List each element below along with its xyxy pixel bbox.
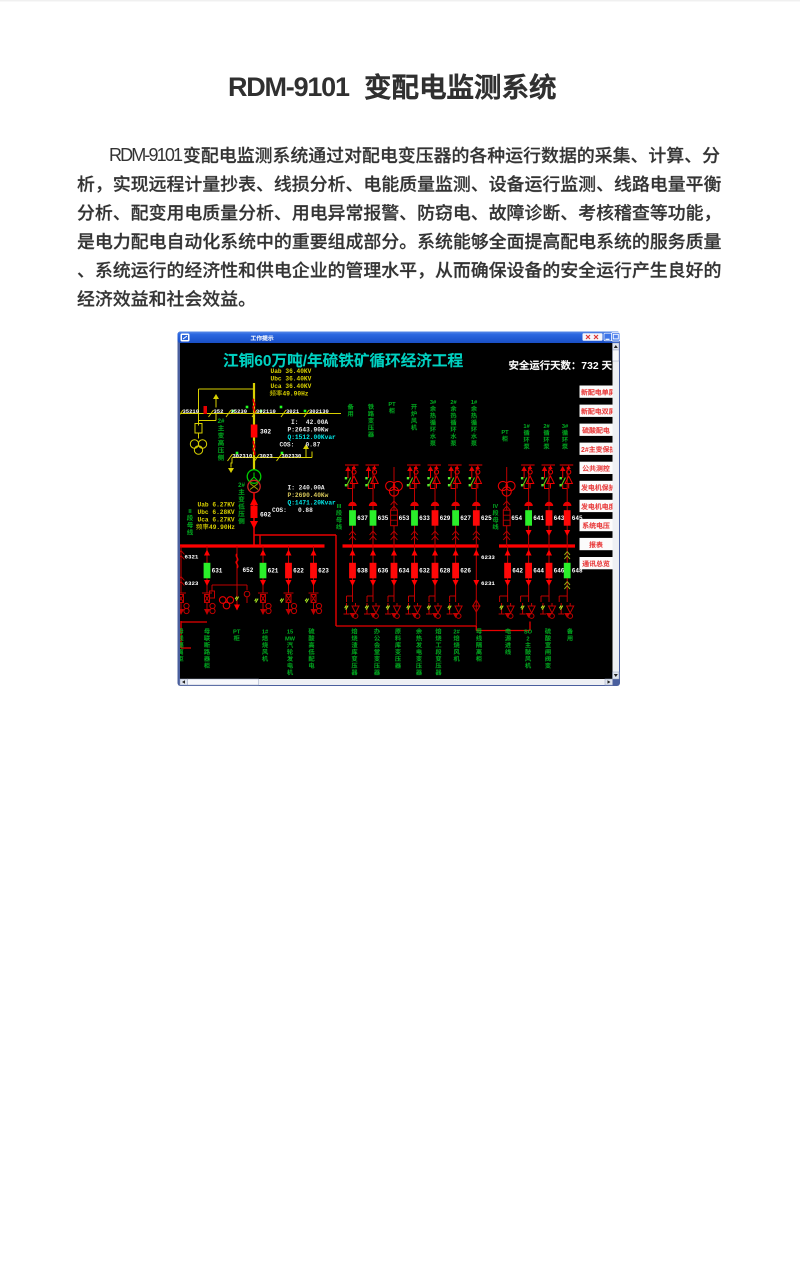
svg-text:602: 602: [260, 512, 271, 519]
svg-text:I: 42.00A: I: 42.00A: [291, 419, 328, 426]
svg-text:Uca 36.40KV: Uca 36.40KV: [271, 383, 312, 390]
svg-text:COS: 0.87: COS: 0.87: [280, 442, 321, 449]
svg-text:35230: 35230: [231, 408, 248, 415]
svg-text:2#: 2#: [450, 400, 457, 406]
svg-text:2#: 2#: [543, 424, 550, 430]
svg-text:622: 622: [293, 568, 304, 575]
svg-text:III: III: [337, 504, 342, 510]
svg-text:652: 652: [243, 567, 254, 574]
svg-text:Ubc 6.28KV: Ubc 6.28KV: [198, 509, 235, 516]
svg-text:COS: 0.88: COS: 0.88: [272, 507, 313, 514]
svg-text:P:2690.40Kw: P:2690.40Kw: [288, 492, 329, 499]
svg-text:648: 648: [572, 568, 583, 575]
svg-text:1#: 1#: [523, 424, 530, 430]
svg-text:6323: 6323: [185, 580, 199, 587]
svg-text:302: 302: [260, 429, 271, 436]
svg-text:Ubc 36.40KV: Ubc 36.40KV: [271, 376, 312, 383]
svg-text:2#: 2#: [453, 630, 460, 636]
svg-text:302310: 302310: [233, 453, 253, 460]
svg-text:636: 636: [378, 568, 389, 575]
svg-text:621: 621: [268, 568, 279, 575]
svg-text:637: 637: [357, 515, 368, 522]
svg-text:Uab 6.27KV: Uab 6.27KV: [198, 502, 235, 509]
svg-text:625: 625: [481, 515, 492, 522]
svg-text:6231: 6231: [481, 580, 495, 587]
svg-text:PT: PT: [501, 430, 509, 436]
svg-text:302330: 302330: [282, 453, 302, 460]
svg-text:SO: SO: [524, 630, 533, 636]
svg-text:654: 654: [511, 515, 522, 522]
svg-text:RDM-9101: RDM-9101: [109, 145, 183, 165]
svg-text:3023: 3023: [260, 453, 274, 460]
svg-text:RDM-9101: RDM-9101: [228, 72, 350, 102]
svg-text:MW: MW: [285, 636, 296, 642]
svg-text:628: 628: [440, 568, 451, 575]
svg-text:6321: 6321: [185, 554, 199, 561]
svg-text:6233: 6233: [481, 554, 495, 561]
svg-text:49.90Hz: 49.90Hz: [209, 524, 235, 531]
svg-text:P:2643.90Kw: P:2643.90Kw: [288, 427, 329, 434]
svg-text:635: 635: [378, 515, 389, 522]
svg-text:634: 634: [399, 568, 410, 575]
svg-text:Uab 36.40KV: Uab 36.40KV: [271, 368, 312, 375]
svg-text:1#: 1#: [262, 630, 269, 636]
svg-text:PT: PT: [233, 630, 241, 636]
svg-text:623: 623: [318, 568, 329, 575]
svg-text:3#: 3#: [562, 424, 569, 430]
svg-text:2#: 2#: [218, 418, 225, 425]
svg-text:631: 631: [212, 568, 223, 575]
svg-text:Q:1471.20Kvar: Q:1471.20Kvar: [288, 500, 337, 507]
svg-text:Q:1512.00Kvar: Q:1512.00Kvar: [288, 434, 337, 441]
svg-text:49.90Hz: 49.90Hz: [283, 391, 309, 398]
svg-text:626: 626: [460, 568, 471, 575]
svg-text:60: 60: [254, 353, 272, 370]
svg-text:627: 627: [460, 515, 471, 522]
svg-text:35210: 35210: [183, 408, 200, 415]
svg-text:653: 653: [399, 515, 410, 522]
svg-text:II: II: [188, 509, 192, 515]
svg-text:644: 644: [533, 568, 544, 575]
svg-text:Uca 6.27KV: Uca 6.27KV: [198, 517, 235, 524]
svg-text:732: 732: [581, 361, 601, 372]
svg-text:302130: 302130: [309, 408, 329, 415]
svg-text:15: 15: [287, 630, 293, 636]
svg-text:629: 629: [440, 515, 451, 522]
svg-text:633: 633: [419, 515, 430, 522]
svg-text:2#: 2#: [238, 482, 245, 489]
svg-text:IV: IV: [493, 504, 499, 510]
svg-text:302110: 302110: [256, 408, 276, 415]
svg-text:643: 643: [554, 515, 565, 522]
svg-text:3#: 3#: [430, 400, 437, 406]
svg-text:2: 2: [526, 636, 529, 642]
svg-text:646: 646: [554, 568, 565, 575]
svg-text:645: 645: [572, 515, 583, 522]
svg-text:641: 641: [533, 515, 544, 522]
svg-text:2#: 2#: [581, 447, 589, 454]
svg-text:1#: 1#: [471, 400, 478, 406]
svg-text:352: 352: [214, 408, 224, 415]
svg-text:638: 638: [357, 568, 368, 575]
svg-text:3021: 3021: [286, 408, 300, 415]
svg-text:632: 632: [419, 568, 430, 575]
svg-text:I: 240.00A: I: 240.00A: [288, 485, 325, 492]
svg-text:642: 642: [512, 568, 523, 575]
svg-text:PT: PT: [388, 402, 396, 408]
